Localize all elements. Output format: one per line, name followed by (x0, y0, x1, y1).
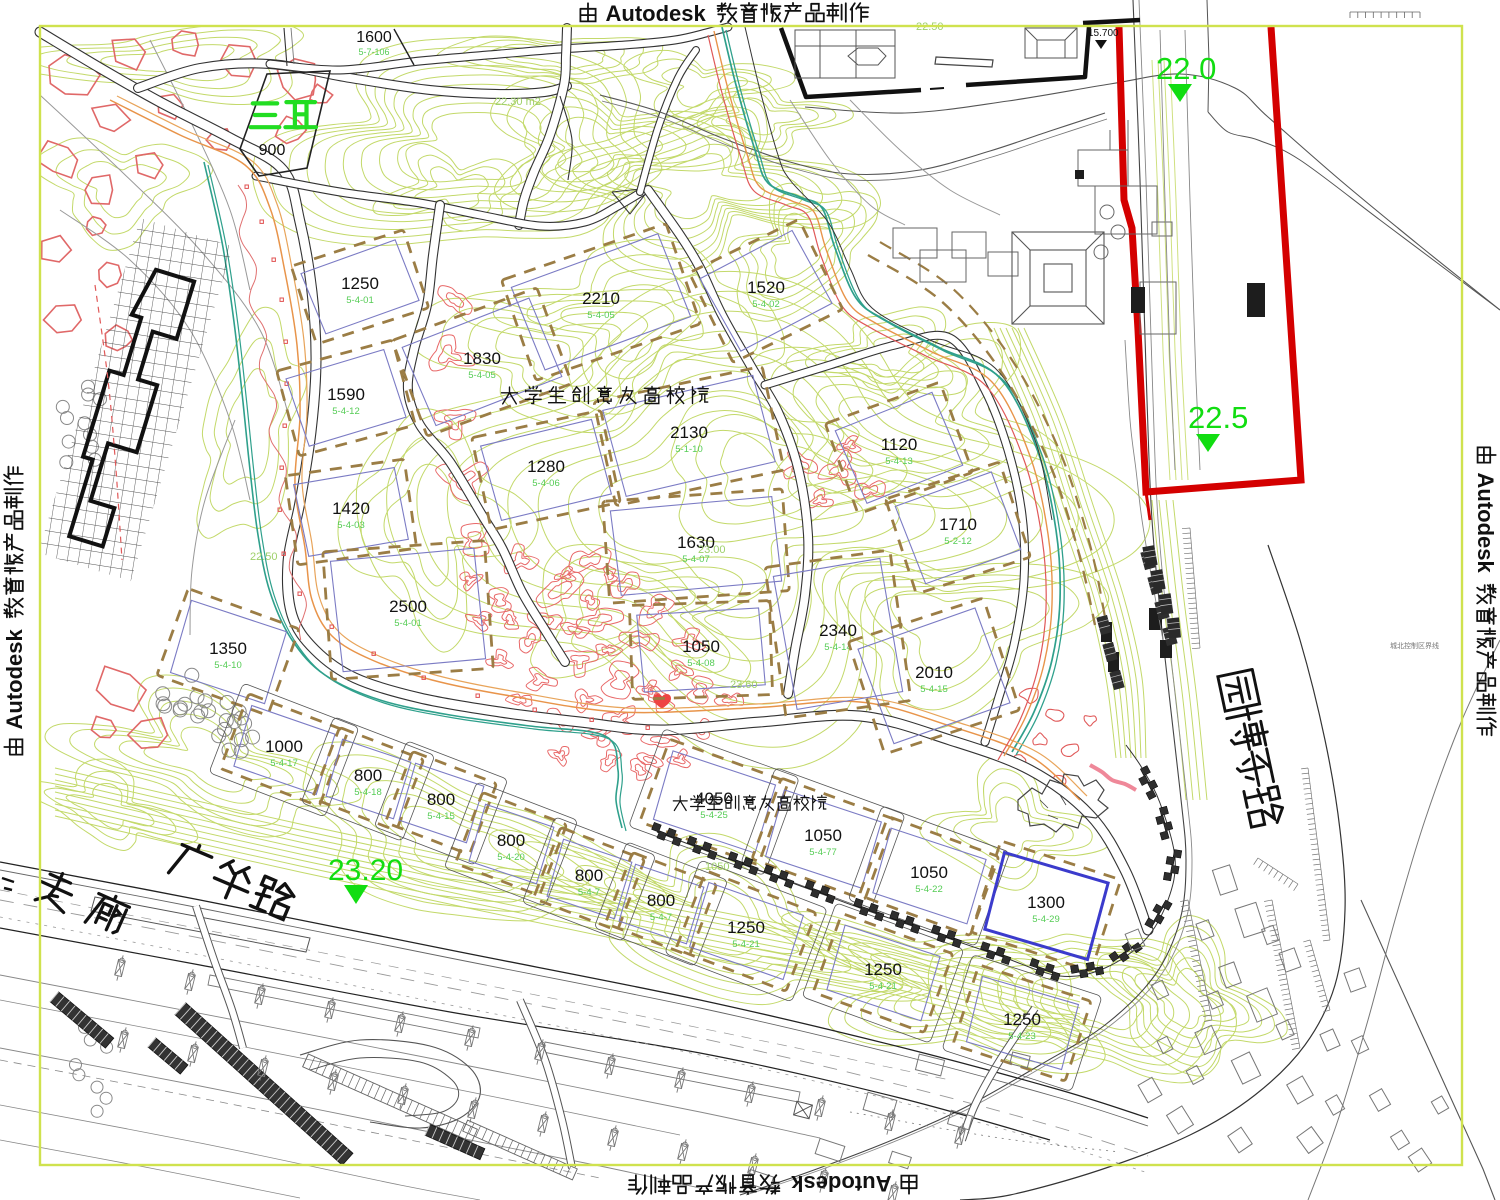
svg-text:2130: 2130 (670, 423, 708, 442)
svg-text:5-4-01: 5-4-01 (346, 295, 373, 306)
svg-text:1000: 1000 (265, 737, 303, 756)
svg-text:5-4-05: 5-4-05 (468, 370, 495, 381)
svg-text:1050: 1050 (705, 861, 729, 873)
svg-text:2500: 2500 (389, 597, 427, 616)
svg-text:2340: 2340 (819, 621, 857, 640)
svg-text:1600: 1600 (356, 29, 392, 46)
svg-text:5-4-12: 5-4-12 (332, 406, 359, 417)
svg-text:5-4-7: 5-4-7 (650, 912, 672, 923)
svg-text:5-1-10: 5-1-10 (675, 444, 702, 455)
svg-text:23.00: 23.00 (698, 544, 726, 556)
svg-text:5-4-20: 5-4-20 (497, 852, 524, 863)
svg-text:1420: 1420 (332, 499, 370, 518)
svg-text:5-4-21: 5-4-21 (732, 939, 759, 950)
svg-text:Autodesk: Autodesk (2, 629, 27, 730)
svg-text:1050: 1050 (804, 826, 842, 845)
svg-text:1300: 1300 (1027, 893, 1065, 912)
svg-text:1250: 1250 (341, 274, 379, 293)
svg-text:1250: 1250 (864, 960, 902, 979)
svg-text:800: 800 (575, 866, 603, 885)
svg-text:15.700: 15.700 (1088, 28, 1119, 39)
svg-text:5-4-17: 5-4-17 (270, 758, 297, 769)
svg-text:5-4-77: 5-4-77 (809, 847, 836, 858)
svg-text:5-4-03: 5-4-03 (337, 520, 364, 531)
svg-text:22.0: 22.0 (1156, 51, 1216, 86)
svg-text:5-4-15: 5-4-15 (920, 684, 947, 695)
svg-text:1710: 1710 (939, 515, 977, 534)
svg-text:城北控制区界线: 城北控制区界线 (1390, 641, 1439, 650)
svg-text:1590: 1590 (327, 385, 365, 404)
svg-text:5-4-06: 5-4-06 (532, 478, 559, 489)
svg-text:900: 900 (259, 142, 286, 159)
svg-text:1250: 1250 (1003, 1010, 1041, 1029)
svg-text:22.30 m2: 22.30 m2 (495, 96, 541, 108)
svg-text:800: 800 (354, 766, 382, 785)
svg-text:5-2-12: 5-2-12 (944, 536, 971, 547)
svg-text:1050: 1050 (682, 637, 720, 656)
svg-text:1830: 1830 (463, 349, 501, 368)
svg-text:5-4-25: 5-4-25 (700, 810, 727, 821)
svg-text:2010: 2010 (915, 663, 953, 682)
svg-text:2210: 2210 (582, 289, 620, 308)
svg-text:800: 800 (647, 891, 675, 910)
svg-text:22.50: 22.50 (250, 551, 278, 563)
svg-text:5-4-29: 5-4-29 (1032, 914, 1059, 925)
svg-text:5-7-106: 5-7-106 (358, 47, 389, 57)
svg-text:1250: 1250 (727, 918, 765, 937)
svg-text:5-4-18: 5-4-18 (354, 787, 381, 798)
svg-text:1520: 1520 (747, 278, 785, 297)
svg-text:5-4-23: 5-4-23 (1008, 1031, 1035, 1042)
svg-text:5-4-05: 5-4-05 (587, 310, 614, 321)
svg-text:5-4-10: 5-4-10 (214, 660, 241, 671)
svg-text:1350: 1350 (209, 639, 247, 658)
svg-text:1280: 1280 (527, 457, 565, 476)
svg-text:800: 800 (497, 831, 525, 850)
svg-text:5-4-13: 5-4-13 (885, 456, 912, 467)
svg-text:1120: 1120 (881, 435, 918, 454)
svg-text:23.60: 23.60 (730, 679, 758, 691)
svg-text:Autodesk: Autodesk (791, 1171, 892, 1196)
svg-text:22.5: 22.5 (1188, 400, 1248, 435)
svg-text:5-4-7: 5-4-7 (578, 887, 600, 898)
svg-text:5-4-21: 5-4-21 (869, 981, 896, 992)
svg-text:800: 800 (427, 790, 455, 809)
svg-text:5-4-08: 5-4-08 (687, 658, 714, 669)
svg-text:5-4-01: 5-4-01 (394, 618, 421, 629)
svg-text:5-4-02: 5-4-02 (752, 299, 779, 310)
svg-text:Autodesk: Autodesk (606, 1, 707, 26)
svg-text:5-4-22: 5-4-22 (915, 884, 942, 895)
svg-text:5-4-15: 5-4-15 (427, 811, 454, 822)
svg-text:23.20: 23.20 (328, 854, 403, 887)
svg-text:Autodesk: Autodesk (1473, 473, 1498, 574)
svg-text:1050: 1050 (910, 863, 948, 882)
